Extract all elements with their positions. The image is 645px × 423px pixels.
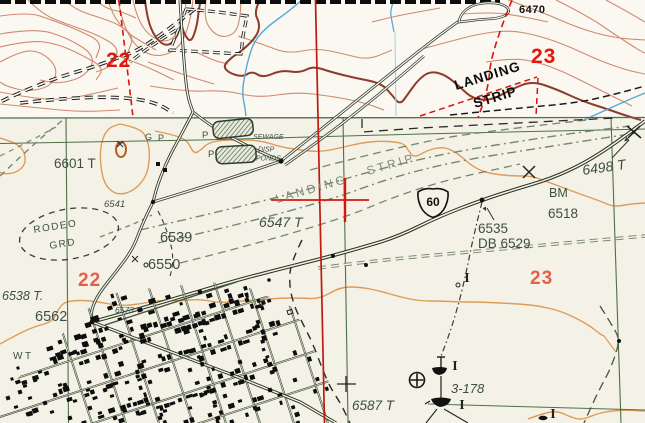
svg-text:6541: 6541 (104, 199, 125, 210)
svg-text:23: 23 (531, 45, 556, 68)
svg-text:DB 6529: DB 6529 (478, 236, 531, 251)
svg-text:6518: 6518 (548, 206, 578, 221)
svg-text:6538 T.: 6538 T. (2, 289, 43, 303)
svg-text:PONDS: PONDS (256, 156, 281, 163)
svg-text:I: I (464, 271, 469, 286)
svg-text:I: I (452, 359, 457, 374)
svg-text:22: 22 (106, 49, 131, 72)
svg-text:6601 T: 6601 T (54, 156, 96, 171)
svg-text:6535: 6535 (478, 221, 508, 236)
svg-text:6550: 6550 (148, 257, 180, 273)
svg-text:I: I (459, 398, 464, 413)
svg-text:6562: 6562 (35, 309, 67, 325)
svg-text:BM: BM (549, 186, 568, 200)
svg-text:60: 60 (426, 195, 440, 209)
svg-text:P: P (202, 130, 208, 141)
svg-text:6470: 6470 (519, 4, 545, 16)
svg-text:3-178: 3-178 (451, 381, 485, 396)
svg-text:23: 23 (530, 268, 553, 289)
svg-text:P: P (208, 149, 214, 160)
svg-text:6547 T: 6547 T (259, 214, 304, 230)
svg-text:SEWAGE: SEWAGE (253, 134, 284, 141)
svg-text:22: 22 (78, 270, 101, 291)
svg-text:G: G (145, 132, 152, 142)
svg-text:W T: W T (13, 351, 31, 362)
svg-text:P: P (158, 133, 164, 143)
svg-text:6539: 6539 (160, 230, 192, 246)
svg-text:6587 T: 6587 T (352, 398, 396, 413)
svg-text:DISP: DISP (258, 147, 275, 154)
svg-text:6573: 6573 (115, 305, 134, 315)
svg-text:I: I (550, 407, 555, 422)
